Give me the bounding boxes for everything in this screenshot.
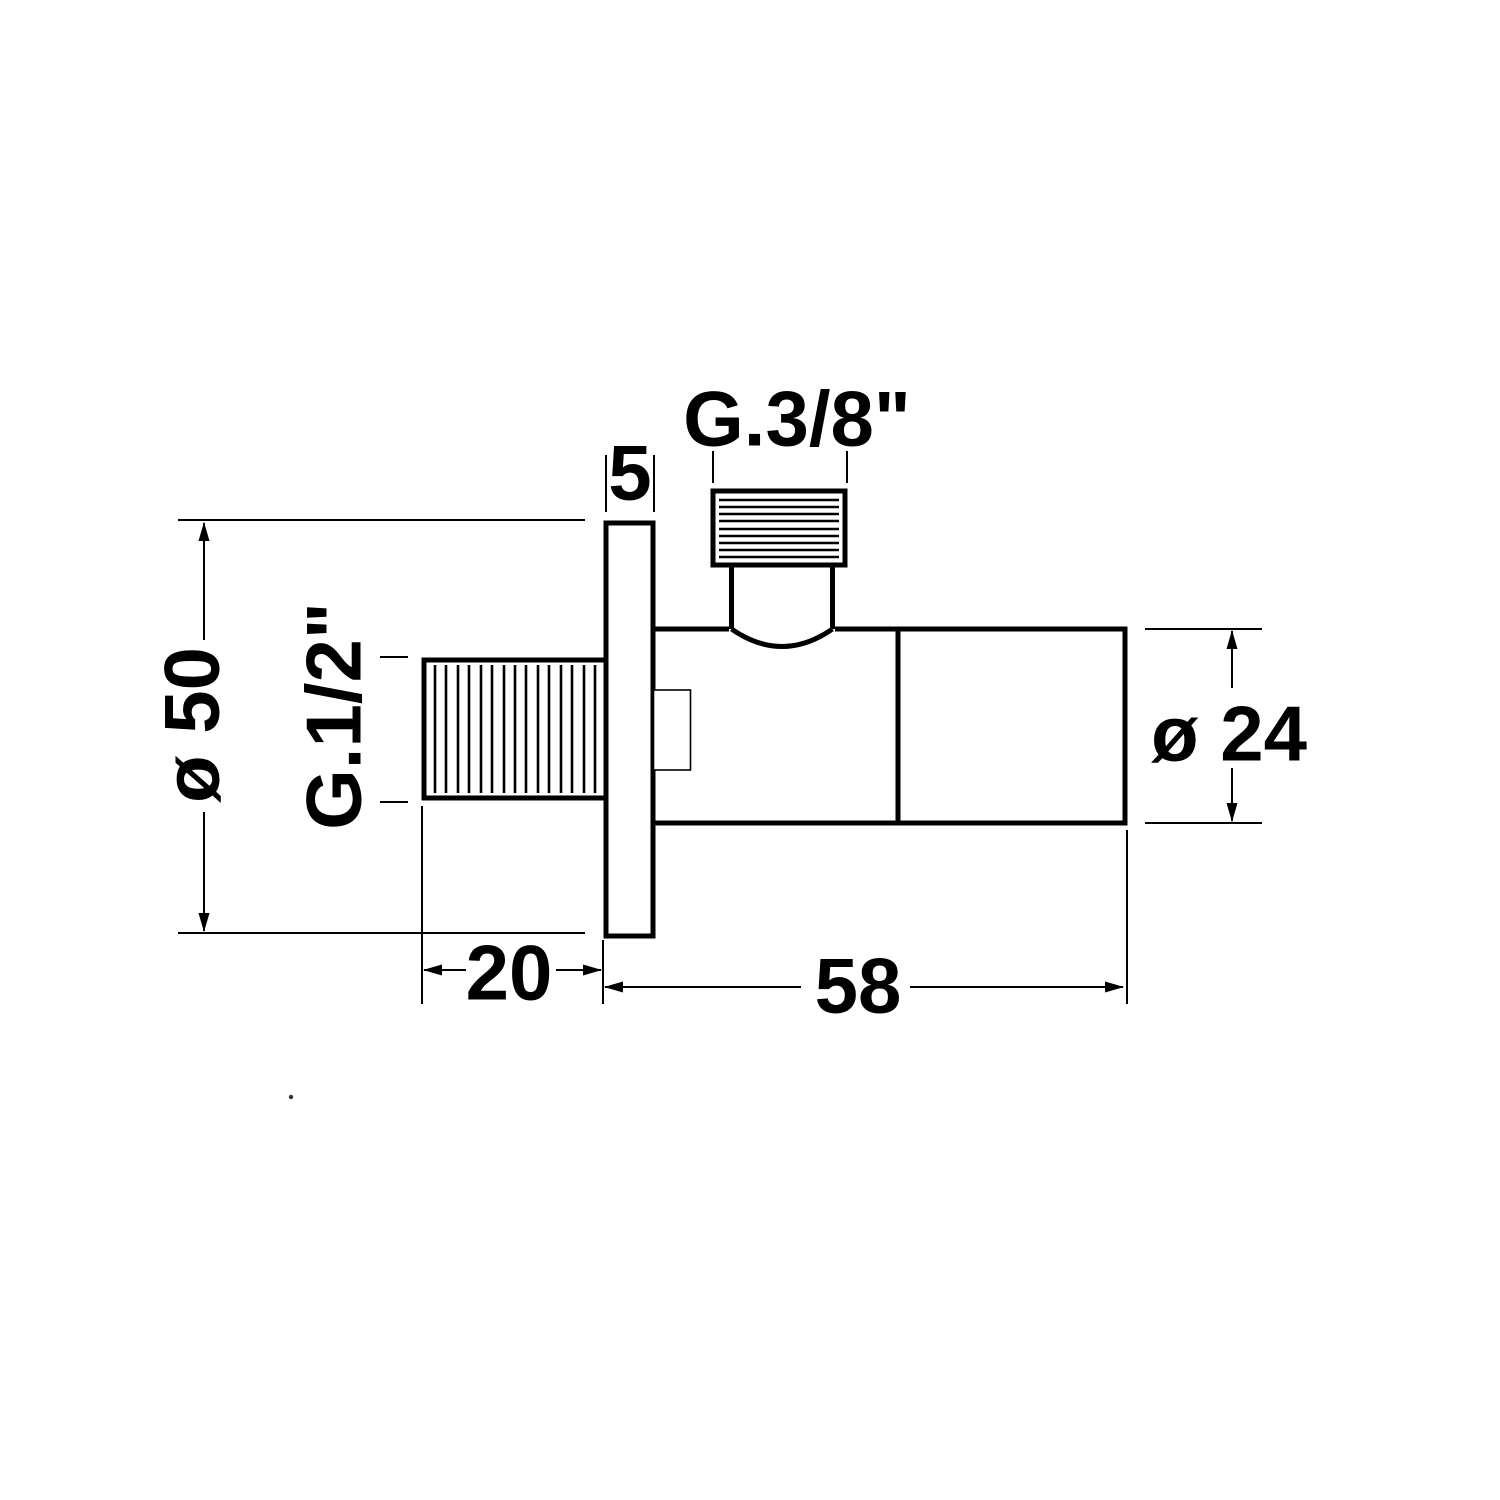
label-inlet-thread: G.1/2" [289,602,377,830]
print-speck [289,1095,293,1099]
dia50-arrow-up [199,522,210,541]
technical-drawing-canvas: G.3/8" 5 G.1/2" ø 50 ø 24 20 58 [0,0,1500,1500]
handle-knob [898,629,1125,823]
dim20-arrow-left [423,965,442,976]
label-body-length: 58 [815,941,902,1029]
body-detail-rect [654,690,691,770]
valve-outline [289,491,1125,1099]
inlet-thread-ticks [380,657,408,802]
dia24-arrow-down [1227,803,1238,822]
dim58-arrow-right [1105,982,1124,993]
dia50-arrow-down [199,913,210,932]
label-flange-thickness: 5 [608,428,651,516]
valve-drawing-svg: G.3/8" 5 G.1/2" ø 50 ø 24 20 58 [0,0,1500,1500]
dia24-arrow-up [1227,630,1238,649]
dim58-arrow-left [604,982,623,993]
neck-arc [732,629,833,647]
label-inlet-length: 20 [466,928,553,1016]
label-handle-diameter: ø 24 [1151,689,1307,777]
inlet-pipe-thread-hatch [435,665,595,793]
wall-flange [606,523,653,936]
label-outlet-thread: G.3/8" [683,374,911,462]
valve-neck [732,565,833,629]
dim20-arrow-right [583,965,602,976]
label-flange-diameter: ø 50 [147,647,235,803]
dimension-labels: G.3/8" 5 G.1/2" ø 50 ø 24 20 58 [147,374,1307,1029]
